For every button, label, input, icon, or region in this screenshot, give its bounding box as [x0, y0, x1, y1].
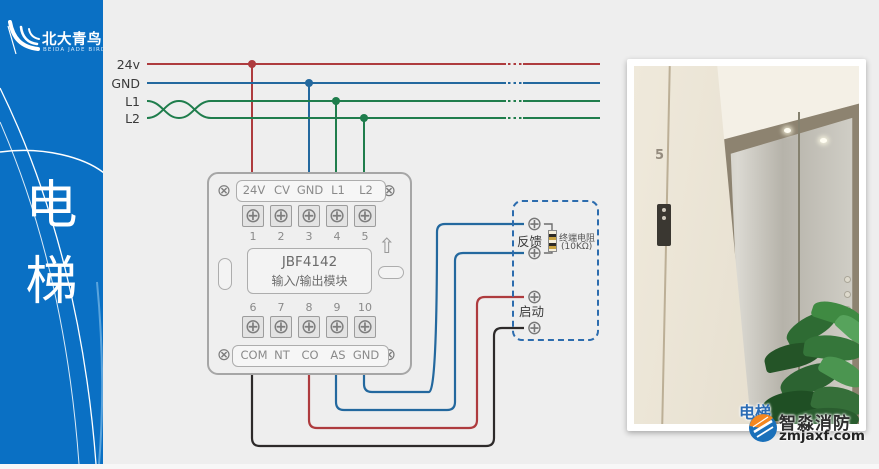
- junction-gnd: [305, 79, 313, 87]
- elevator-photo: 5: [634, 66, 859, 424]
- brand-name: 北大青鸟: [42, 28, 102, 49]
- brand-subtitle: BEIDA JADE BIRD: [43, 47, 103, 53]
- start-terminal-bottom-icon: ⊕: [525, 319, 544, 338]
- feedback-label: 反馈: [517, 231, 542, 250]
- bottom-strip: [0, 464, 879, 469]
- vertical-title-char-1: 电: [0, 168, 103, 244]
- photo-downlight: [820, 138, 827, 143]
- bus-label-gnd: GND: [102, 76, 140, 91]
- terminal-label-24v: 24V: [239, 183, 269, 197]
- screw-terminal-3: ⊕: [298, 205, 320, 227]
- screw-terminal-5: ⊕: [354, 205, 376, 227]
- mount-screw-icon: ⊗: [215, 182, 233, 200]
- terminal-label-l2: L2: [351, 183, 381, 197]
- terminal-number: 3: [295, 230, 323, 243]
- terminal-label-gnd2: GND: [351, 348, 381, 362]
- screw-terminal-8: ⊕: [298, 316, 320, 338]
- bus-label-24v: 24v: [102, 57, 140, 72]
- junction-24v: [248, 60, 256, 68]
- screw-head-icon: ⊕: [357, 314, 374, 338]
- terminal-label-l1: L1: [323, 183, 353, 197]
- module-nameplate: JBF4142 输入/输出模块: [247, 248, 372, 294]
- wire-24v-bus: [147, 64, 600, 179]
- photo-door-button: [844, 276, 851, 283]
- terminal-number: 10: [351, 301, 379, 314]
- screw-head-icon: ⊕: [245, 314, 262, 338]
- wire-gnd-bus: [147, 83, 600, 179]
- screw-terminal-9: ⊕: [326, 316, 348, 338]
- screw-head-icon: ⊕: [273, 203, 290, 227]
- photo-floor-sign: 5: [655, 148, 664, 163]
- zhimiao-logo-icon: [748, 413, 778, 443]
- terminal-label-co: CO: [295, 348, 325, 362]
- terminal-number: 1: [239, 230, 267, 243]
- page-vertical-title: 电 梯: [0, 168, 103, 320]
- screw-terminal-4: ⊕: [326, 205, 348, 227]
- bus-label-l2: L2: [102, 111, 140, 126]
- page: 北大青鸟 BEIDA JADE BIRD 电 梯 24v GND L1 L2 ⊗…: [0, 0, 879, 469]
- mount-screw-icon: ⊗: [215, 346, 233, 364]
- photo-downlight: [784, 128, 791, 133]
- bottom-terminal-strip: COM NT CO AS GND: [232, 345, 389, 367]
- jade-bird-logo-icon: [6, 20, 42, 60]
- module-slot-right: [378, 266, 404, 279]
- photo-call-panel: [657, 204, 671, 246]
- terminal-number: 8: [295, 301, 323, 314]
- screw-terminal-1: ⊕: [242, 205, 264, 227]
- vertical-title-char-2: 梯: [0, 244, 103, 320]
- module-name: 输入/输出模块: [248, 272, 371, 289]
- wire-l1-l2-twisted-pair: [147, 101, 600, 179]
- watermark-site-link[interactable]: zmjaxf.com: [779, 428, 865, 444]
- terminal-number: 4: [323, 230, 351, 243]
- screw-terminal-7: ⊕: [270, 316, 292, 338]
- up-arrow-icon: ⇧: [378, 234, 396, 258]
- terminal-number: 2: [267, 230, 295, 243]
- screw-head-icon: ⊕: [245, 203, 262, 227]
- terminal-number: 7: [267, 301, 295, 314]
- screw-head-icon: ⊕: [329, 314, 346, 338]
- terminal-resistor: [548, 230, 557, 252]
- sidebar: 北大青鸟 BEIDA JADE BIRD 电 梯: [0, 0, 103, 464]
- module-model: JBF4142: [248, 254, 371, 270]
- start-label: 启动: [519, 301, 544, 320]
- terminal-number: 6: [239, 301, 267, 314]
- screw-head-icon: ⊕: [301, 314, 318, 338]
- screw-head-icon: ⊕: [301, 203, 318, 227]
- screw-head-icon: ⊕: [329, 203, 346, 227]
- bus-label-l1: L1: [102, 94, 140, 109]
- terminal-label-gnd: GND: [295, 183, 325, 197]
- screw-terminal-10: ⊕: [354, 316, 376, 338]
- resistor-value: (10KΩ): [561, 242, 592, 252]
- photo-door-button: [844, 291, 851, 298]
- junction-l2: [360, 114, 368, 122]
- terminal-number: 5: [351, 230, 379, 243]
- screw-head-icon: ⊕: [273, 314, 290, 338]
- terminal-label-as: AS: [323, 348, 353, 362]
- terminal-label-nt: NT: [267, 348, 297, 362]
- screw-terminal-2: ⊕: [270, 205, 292, 227]
- junction-l1: [332, 97, 340, 105]
- top-terminal-strip: 24V CV GND L1 L2: [236, 180, 386, 202]
- io-module: ⊗ ⊗ ⊗ ⊗ 24V CV GND L1 L2 ⊕ ⊕ ⊕ ⊕ ⊕ 1 2 3…: [207, 172, 412, 375]
- terminal-label-com: COM: [239, 348, 269, 362]
- elevator-photo-card: 5: [627, 59, 866, 431]
- screw-head-icon: ⊕: [357, 203, 374, 227]
- terminal-number: 9: [323, 301, 351, 314]
- module-slot-left: [218, 258, 232, 290]
- screw-terminal-6: ⊕: [242, 316, 264, 338]
- terminal-label-cv: CV: [267, 183, 297, 197]
- brand-block: 北大青鸟 BEIDA JADE BIRD: [0, 14, 103, 64]
